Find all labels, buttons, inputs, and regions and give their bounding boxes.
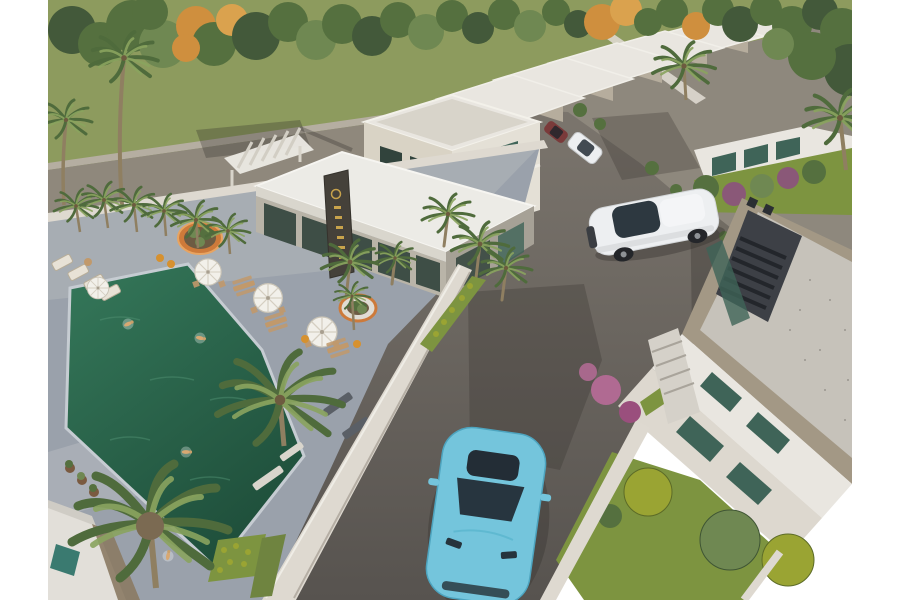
palm-crown-center bbox=[136, 512, 164, 540]
left-margin bbox=[0, 0, 48, 600]
umbrella bbox=[254, 284, 283, 313]
umbrella bbox=[87, 277, 109, 299]
render-stage bbox=[0, 0, 900, 600]
umbrella bbox=[195, 259, 221, 285]
right-margin bbox=[852, 0, 900, 600]
render-canvas bbox=[0, 0, 900, 600]
